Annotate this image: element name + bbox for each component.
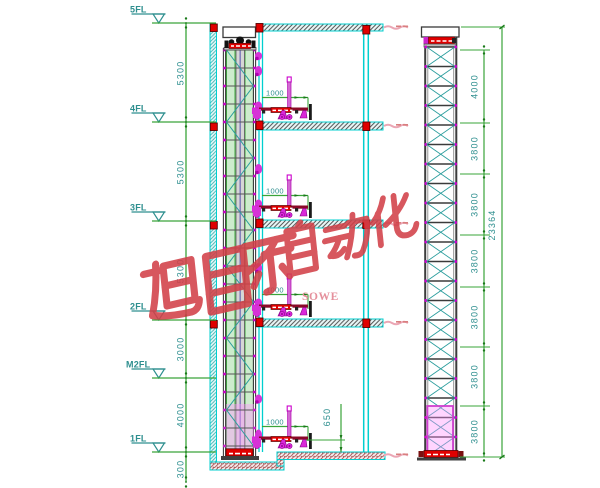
- svg-text:1FL: 1FL: [130, 434, 147, 444]
- svg-text:4000: 4000: [176, 403, 186, 428]
- svg-text:SOWE: SOWE: [302, 291, 339, 303]
- svg-text:2FL: 2FL: [130, 302, 147, 312]
- svg-text:1000: 1000: [266, 89, 284, 98]
- svg-text:4000: 4000: [470, 74, 480, 99]
- svg-text:3800: 3800: [470, 136, 480, 161]
- svg-text:5FL: 5FL: [130, 5, 147, 15]
- svg-text:1000: 1000: [266, 418, 284, 427]
- svg-text:1000: 1000: [266, 187, 284, 196]
- svg-text:5300: 5300: [176, 160, 186, 185]
- svg-text:3800: 3800: [470, 249, 480, 274]
- svg-text:3800: 3800: [470, 192, 480, 217]
- svg-text:3800: 3800: [470, 364, 480, 389]
- svg-text:650: 650: [322, 408, 332, 427]
- svg-text:3800: 3800: [470, 419, 480, 444]
- svg-text:5300: 5300: [176, 61, 186, 86]
- svg-text:300: 300: [176, 460, 186, 479]
- svg-text:4FL: 4FL: [130, 104, 147, 114]
- svg-text:M2FL: M2FL: [126, 360, 151, 370]
- svg-text:3800: 3800: [470, 305, 480, 330]
- svg-text:3FL: 3FL: [130, 203, 147, 213]
- svg-text:23364: 23364: [487, 209, 497, 240]
- svg-text:3000: 3000: [176, 337, 186, 362]
